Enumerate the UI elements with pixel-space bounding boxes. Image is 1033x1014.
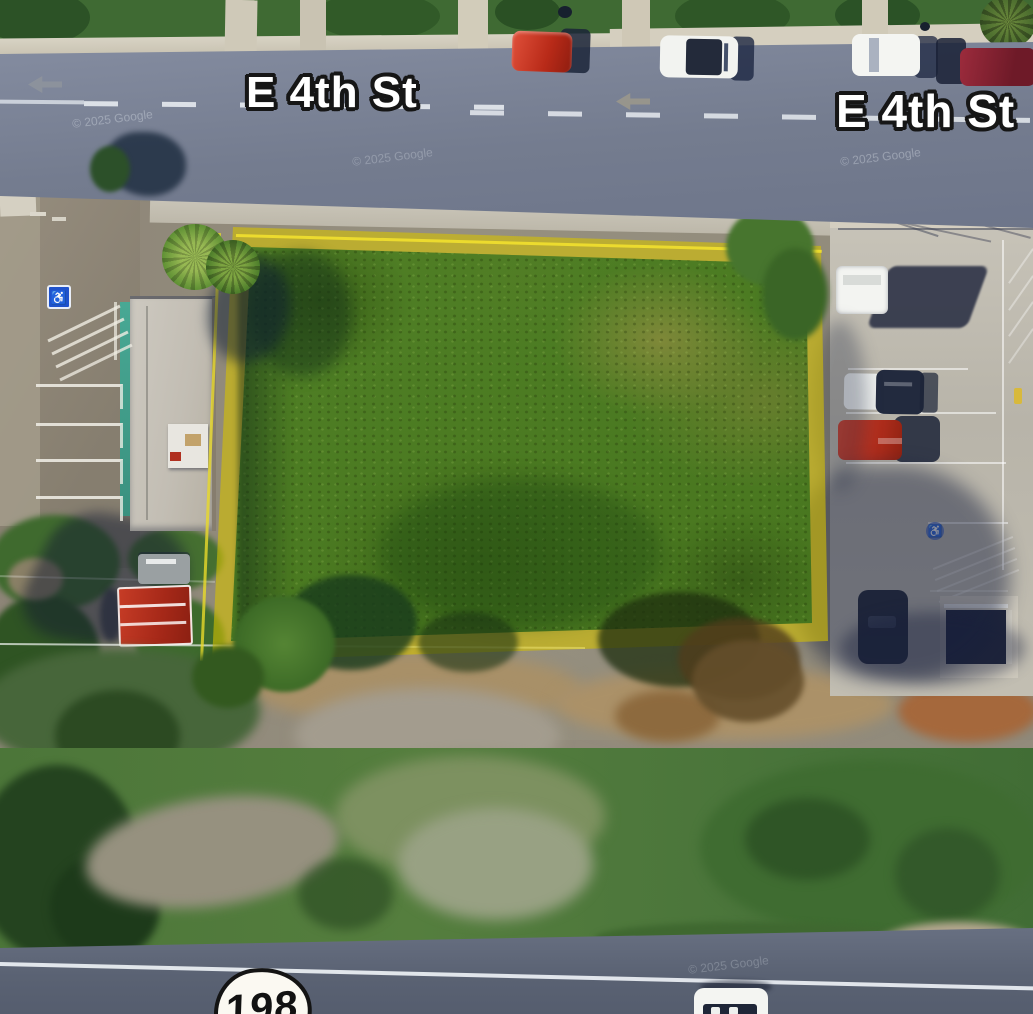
gravel-grass-patch bbox=[398, 808, 593, 920]
car-shadow bbox=[920, 373, 939, 413]
parcel-tree bbox=[418, 612, 518, 672]
car-white bbox=[852, 30, 938, 78]
building-roof bbox=[130, 296, 216, 531]
parking-stall-line bbox=[36, 423, 123, 448]
grass-shadow bbox=[298, 858, 393, 930]
curb-mark bbox=[52, 217, 66, 221]
yellow-bollard bbox=[1014, 388, 1022, 404]
left-lot-light-column bbox=[0, 196, 40, 526]
road-tree-green bbox=[90, 146, 130, 192]
gray-vehicle-roof bbox=[146, 559, 176, 564]
accessible-parking-badge: ♿ bbox=[47, 285, 71, 309]
rooftop-unit-tan bbox=[185, 434, 201, 446]
palm-tree bbox=[206, 240, 260, 294]
parking-stall-line bbox=[36, 496, 123, 521]
van-roof-line bbox=[843, 275, 881, 285]
route-number: 198 bbox=[225, 981, 300, 1014]
rooftop-unit-red bbox=[170, 452, 181, 461]
car-detail bbox=[878, 438, 902, 444]
curb-mark bbox=[30, 212, 46, 216]
car-roof-detail bbox=[729, 1007, 738, 1014]
car-body-white bbox=[852, 34, 920, 76]
dark-grass bbox=[895, 828, 1000, 920]
store-building bbox=[120, 296, 217, 532]
verge-bush bbox=[495, 0, 560, 30]
pedestrian-dot bbox=[558, 6, 572, 18]
car-body-red bbox=[511, 31, 572, 73]
truck-rack-bar bbox=[120, 621, 186, 626]
street-label: E 4th St bbox=[836, 84, 1015, 138]
parking-stall-line bbox=[36, 459, 123, 484]
sidewalk-strip bbox=[300, 0, 326, 58]
tree-shadow bbox=[840, 612, 1025, 684]
red-truck bbox=[117, 585, 193, 648]
rooftop-unit bbox=[168, 424, 208, 468]
car-roof-dark bbox=[876, 370, 925, 415]
sidewalk-strip bbox=[224, 0, 257, 58]
lane-line-solid bbox=[0, 100, 84, 105]
hatch-edge bbox=[114, 302, 117, 360]
car-police bbox=[660, 31, 755, 81]
roof-seam bbox=[146, 306, 148, 520]
gray-vehicle bbox=[138, 554, 190, 584]
car-windshield-band bbox=[703, 1004, 757, 1014]
car-white-bottom bbox=[694, 988, 776, 1014]
car-maroon bbox=[946, 44, 1033, 88]
accessible-icon: ♿ bbox=[51, 291, 67, 304]
parking-stall-line bbox=[36, 384, 123, 409]
satellite-map: ♿ bbox=[0, 0, 1033, 1014]
truck-rack-bar bbox=[120, 603, 186, 608]
lot-divider-line bbox=[1002, 240, 1004, 570]
palm-top-right bbox=[980, 0, 1033, 48]
dark-grass bbox=[745, 798, 870, 880]
car-red bbox=[511, 27, 591, 76]
car-trunk-line bbox=[724, 43, 728, 71]
car-windshield bbox=[869, 38, 879, 72]
car-roof-line bbox=[884, 382, 912, 386]
white-van bbox=[836, 266, 888, 314]
street-label: E 4th St bbox=[246, 68, 418, 118]
bush-brown bbox=[692, 640, 804, 722]
trees-parcel-right bbox=[762, 248, 828, 340]
car-roof-markings bbox=[686, 39, 723, 76]
bush bbox=[192, 646, 264, 708]
car-roof-detail bbox=[711, 1007, 720, 1014]
car-body-maroon bbox=[960, 48, 1033, 86]
stall-line-right bbox=[846, 462, 1006, 464]
